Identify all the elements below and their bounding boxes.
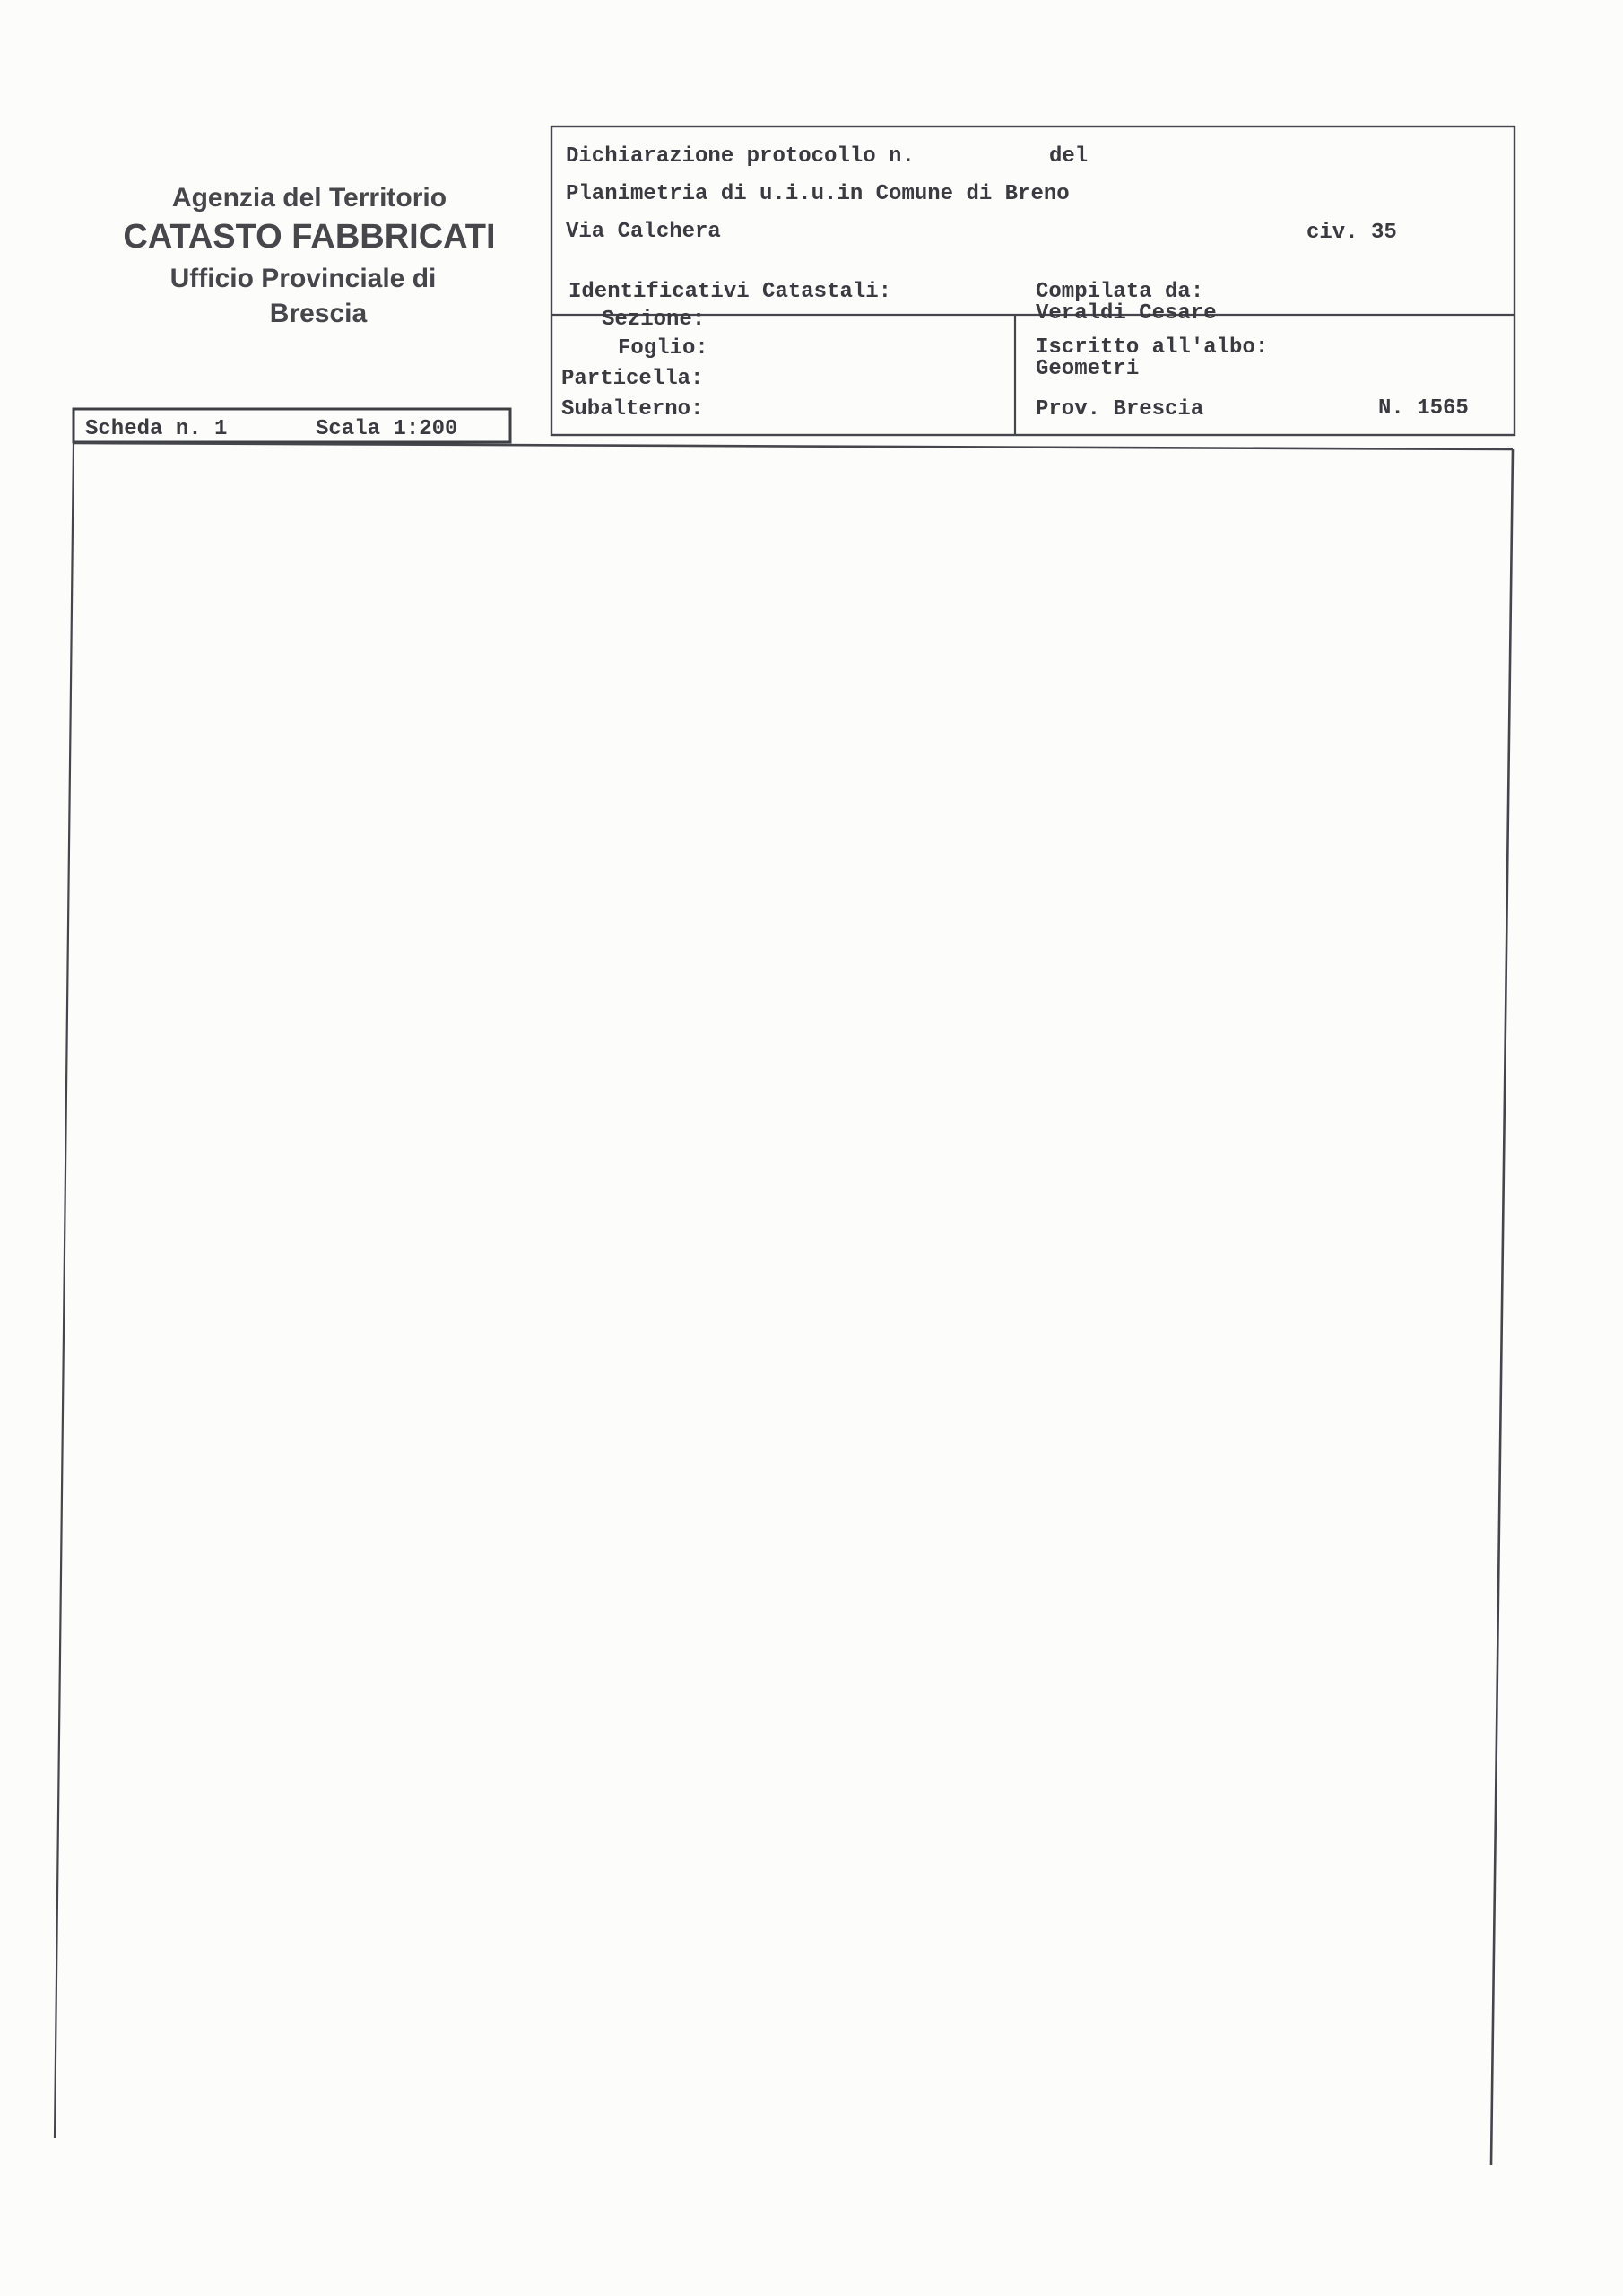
svg-text:Geometri: Geometri bbox=[1036, 357, 1139, 381]
svg-text:Veraldi Cesare: Veraldi Cesare bbox=[1036, 301, 1217, 326]
svg-text:Planimetria di u.i.u.in Comune: Planimetria di u.i.u.in Comune di Breno bbox=[566, 182, 1070, 206]
svg-text:Ufficio Provinciale di: Ufficio Provinciale di bbox=[170, 264, 437, 293]
svg-text:Foglio:: Foglio: bbox=[618, 336, 708, 361]
svg-text:civ. 35: civ. 35 bbox=[1306, 221, 1397, 245]
svg-text:Via Calchera: Via Calchera bbox=[566, 220, 721, 244]
svg-text:Scheda n. 1: Scheda n. 1 bbox=[85, 417, 227, 441]
svg-text:N. 1565: N. 1565 bbox=[1378, 396, 1469, 421]
svg-text:Sezione:: Sezione: bbox=[602, 308, 705, 332]
svg-text:Particella:: Particella: bbox=[561, 367, 703, 391]
svg-text:Prov. Brescia: Prov. Brescia bbox=[1036, 397, 1203, 422]
svg-text:Brescia: Brescia bbox=[270, 299, 368, 328]
svg-text:Identificativi Catastali:: Identificativi Catastali: bbox=[568, 280, 891, 304]
svg-text:del: del bbox=[1049, 144, 1088, 169]
svg-text:Iscritto all'albo:: Iscritto all'albo: bbox=[1036, 335, 1268, 360]
svg-text:Compilata da:: Compilata da: bbox=[1036, 280, 1203, 304]
svg-text:Subalterno:: Subalterno: bbox=[561, 397, 703, 422]
svg-text:Scala 1:200: Scala 1:200 bbox=[316, 417, 457, 441]
svg-text:CATASTO FABBRICATI: CATASTO FABBRICATI bbox=[123, 218, 495, 256]
svg-text:Dichiarazione protocollo n.: Dichiarazione protocollo n. bbox=[566, 144, 915, 169]
svg-text:Agenzia del Territorio: Agenzia del Territorio bbox=[172, 183, 447, 213]
